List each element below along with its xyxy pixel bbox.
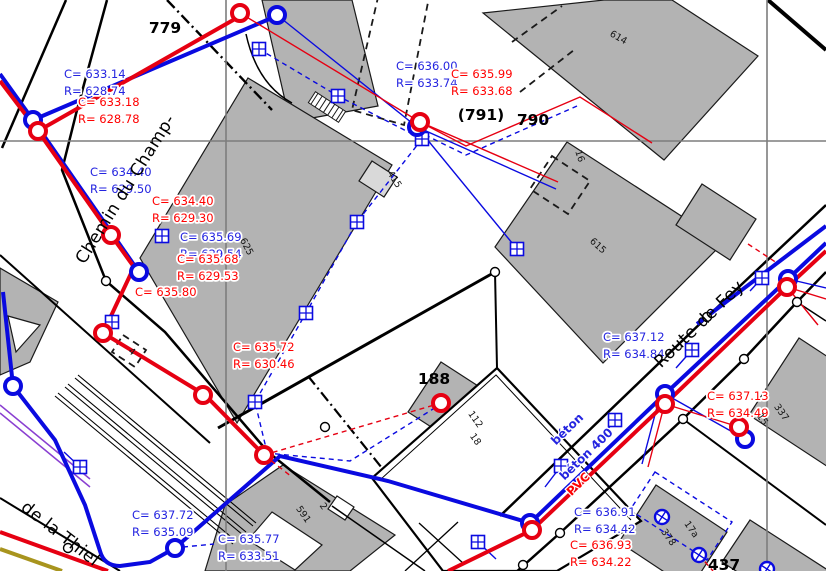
- sewer-manhole-node[interactable]: [524, 522, 540, 538]
- boundary-615-west: [495, 272, 497, 368]
- elevation-annotation: C= 635.80: [135, 285, 197, 299]
- water-node[interactable]: [131, 264, 147, 280]
- boundary-point-node[interactable]: [519, 561, 528, 570]
- elevation-annotation: C= 633.14: [64, 67, 126, 81]
- grille-inlet-node[interactable]: [511, 243, 524, 256]
- sewer-manhole-node[interactable]: [95, 325, 111, 341]
- elevation-annotation: C= 635.77: [218, 532, 280, 546]
- elevation-annotation: R= 634.22: [570, 555, 632, 569]
- parcel-number-label: 779: [149, 19, 181, 37]
- elevation-annotation: C= 637.72: [132, 508, 194, 522]
- sewer-manhole-node[interactable]: [412, 114, 428, 130]
- elevation-annotation: C= 636.00: [396, 59, 458, 73]
- elevation-annotation: C= 636.91: [574, 505, 636, 519]
- water-node[interactable]: [269, 7, 285, 23]
- grille-inlet-node[interactable]: [609, 414, 622, 427]
- grille-inlet-node[interactable]: [351, 216, 364, 229]
- elevation-annotation: R= 629.53: [177, 269, 239, 283]
- elevation-annotation: R= 628.78: [78, 112, 140, 126]
- elevation-annotation: C= 634.40: [152, 194, 214, 208]
- parcel-number-label: 790: [517, 111, 550, 129]
- building-625: [140, 78, 392, 423]
- road-corner-topright: [768, 0, 826, 50]
- parcel-number-label: (791): [458, 106, 505, 124]
- sewer-manhole-node[interactable]: [779, 279, 795, 295]
- grille-inlet-node[interactable]: [156, 230, 169, 243]
- elevation-annotation: C= 637.12: [603, 330, 665, 344]
- boundary-point-node[interactable]: [793, 298, 802, 307]
- elevation-annotation: C= 635.99: [451, 67, 513, 81]
- sewer-manhole-node[interactable]: [256, 447, 272, 463]
- sewer-manhole-node[interactable]: [195, 387, 211, 403]
- map-canvas[interactable]: C= 633.14R= 628.74C= 633.18R= 628.78C= 6…: [0, 0, 826, 571]
- elevation-annotation: R= 630.46: [233, 357, 295, 371]
- elevation-annotation: R= 633.68: [451, 84, 513, 98]
- sewer-manhole-node[interactable]: [433, 395, 449, 411]
- elevation-annotation: C= 633.18: [78, 95, 140, 109]
- sewer-manhole-node[interactable]: [232, 5, 248, 21]
- elevation-annotation: R= 629.30: [152, 211, 214, 225]
- boundary-point-node[interactable]: [491, 268, 500, 277]
- elevation-annotation: C= 637.13: [707, 389, 769, 403]
- purple-conduit[interactable]: [0, 405, 90, 487]
- building-614: [483, 0, 758, 160]
- sewer-manhole-node[interactable]: [657, 396, 673, 412]
- water-node[interactable]: [167, 540, 183, 556]
- boundary-point-node[interactable]: [321, 423, 330, 432]
- elevation-annotation: R= 635.09: [132, 525, 194, 539]
- boundary-point-node[interactable]: [740, 355, 749, 364]
- elevation-annotation: C= 636.93: [570, 538, 632, 552]
- sewer-manhole-node[interactable]: [731, 419, 747, 435]
- elevation-annotation: R= 633.74: [396, 76, 458, 90]
- grille-inlet-node[interactable]: [74, 461, 87, 474]
- gis-map-view: C= 633.14R= 628.74C= 633.18R= 628.78C= 6…: [0, 0, 826, 571]
- elevation-annotation: C= 635.72: [233, 340, 295, 354]
- grille-inlet-node[interactable]: [253, 43, 266, 56]
- grille-inlet-node[interactable]: [472, 536, 485, 549]
- boundary-point-node[interactable]: [102, 277, 111, 286]
- grille-inlet-node[interactable]: [249, 396, 262, 409]
- elevation-annotation: C= 635.68: [177, 252, 239, 266]
- parcel-number-label: 188: [418, 370, 450, 388]
- elevation-annotation: R= 633.51: [218, 549, 280, 563]
- grille-inlet-node[interactable]: [300, 307, 313, 320]
- elevation-annotation: R= 634.42: [574, 522, 636, 536]
- water-node[interactable]: [5, 378, 21, 394]
- boundary-point-node[interactable]: [679, 415, 688, 424]
- boundary-point-node[interactable]: [556, 529, 565, 538]
- sewer-manhole-node[interactable]: [30, 123, 46, 139]
- grille-inlet-node[interactable]: [756, 272, 769, 285]
- parcel-number-label: 437: [708, 556, 740, 571]
- grille-inlet-node[interactable]: [332, 90, 345, 103]
- elevation-annotation: C= 635.69: [180, 230, 242, 244]
